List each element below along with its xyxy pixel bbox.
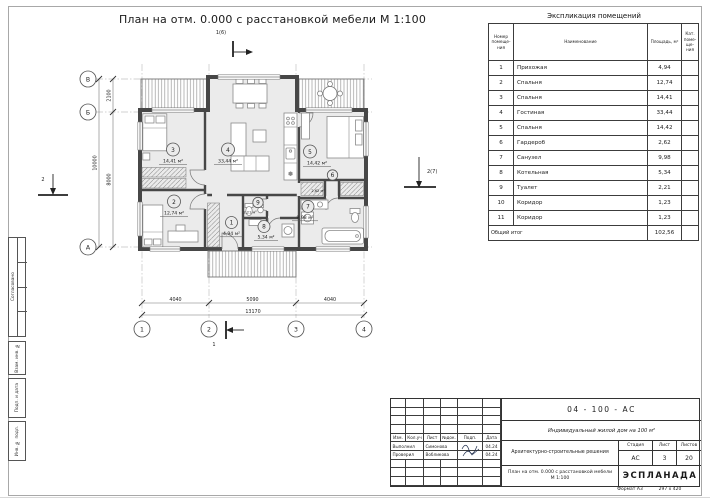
titleblock-cell bbox=[458, 477, 483, 486]
table-cell: 14,41 bbox=[648, 91, 682, 106]
floor-plan-drawing: ❄ 1 4,94 м² bbox=[30, 20, 460, 365]
sheets-total: 20 bbox=[676, 451, 701, 466]
table-cell: 10 bbox=[489, 196, 514, 211]
table-cell bbox=[682, 61, 699, 76]
svg-text:2: 2 bbox=[41, 177, 44, 183]
svg-text:4040: 4040 bbox=[324, 297, 336, 303]
table-cell: 5,34 bbox=[648, 166, 682, 181]
table-cell: 11 bbox=[489, 211, 514, 226]
table-row: 6Гардероб2,62 bbox=[489, 136, 699, 151]
table-row: 10Коридор1,23 bbox=[489, 196, 699, 211]
table-cell: 2,62 bbox=[648, 136, 682, 151]
table-cell: 4,94 bbox=[648, 61, 682, 76]
titleblock-cell bbox=[424, 477, 441, 486]
titleblock-cell bbox=[424, 468, 441, 477]
table-row: 4Гостиная33,44 bbox=[489, 106, 699, 121]
svg-text:6: 6 bbox=[331, 173, 335, 179]
titleblock-cell bbox=[424, 399, 441, 408]
titleblock-cell bbox=[483, 460, 501, 469]
table-cell: Спальня bbox=[514, 121, 648, 136]
dining-table bbox=[233, 79, 267, 108]
col-header-name: Наименование bbox=[514, 24, 648, 61]
svg-text:4: 4 bbox=[362, 326, 366, 333]
terrace-right bbox=[297, 79, 364, 110]
titleblock-cell bbox=[458, 399, 483, 408]
titleblock-cell bbox=[424, 416, 441, 425]
titleblock-cell bbox=[441, 416, 458, 425]
table-cell bbox=[682, 211, 699, 226]
svg-text:7: 7 bbox=[306, 205, 310, 211]
table-cell: 6 bbox=[489, 136, 514, 151]
col-header-area: Площадь, м² bbox=[648, 24, 682, 61]
format-label: Формат А3 bbox=[607, 487, 653, 492]
table-row: 1Прихожая4,94 bbox=[489, 61, 699, 76]
svg-text:14,42 м²: 14,42 м² bbox=[307, 161, 327, 167]
svg-text:5,34 м²: 5,34 м² bbox=[258, 235, 275, 241]
titleblock-cell bbox=[406, 468, 424, 477]
titleblock-cell: №док. bbox=[441, 434, 458, 443]
svg-text:2: 2 bbox=[172, 200, 176, 206]
table-cell: Коридор bbox=[514, 211, 648, 226]
terrace-left bbox=[141, 79, 208, 110]
table-cell: 102,56 bbox=[648, 226, 682, 241]
table-cell: 1,23 bbox=[648, 196, 682, 211]
section-marker-left: 2 bbox=[38, 174, 68, 195]
table-cell bbox=[682, 136, 699, 151]
svg-text:1: 1 bbox=[140, 326, 144, 333]
titleblock-cell bbox=[458, 460, 483, 469]
titleblock-cell bbox=[406, 477, 424, 486]
titleblock-cell bbox=[391, 460, 406, 469]
svg-text:9: 9 bbox=[256, 201, 260, 207]
stage-label: Стадия bbox=[618, 441, 652, 451]
svg-text:13170: 13170 bbox=[245, 309, 260, 315]
table-row: 7Санузел9,98 bbox=[489, 151, 699, 166]
svg-text:3: 3 bbox=[171, 148, 175, 154]
table-cell: 1 bbox=[489, 61, 514, 76]
table-cell bbox=[682, 106, 699, 121]
table-row: 11Коридор1,23 bbox=[489, 211, 699, 226]
titleblock-cell bbox=[458, 425, 483, 434]
table-cell: Коридор bbox=[514, 196, 648, 211]
titleblock-cell: Изм. bbox=[391, 434, 406, 443]
schedule-header-row: Номер помеще- ния Наименование Площадь, … bbox=[489, 24, 699, 61]
table-cell bbox=[682, 76, 699, 91]
titleblock-cell bbox=[406, 416, 424, 425]
section-marker-bottom: 1 bbox=[212, 321, 244, 348]
titleblock-cell bbox=[483, 408, 501, 417]
sheet-label: Лист bbox=[652, 441, 676, 451]
titleblock-grid: Изм.Кол.учЛист№док.Подп.ДатаВыполнилСимо… bbox=[391, 399, 501, 486]
svg-text:2,62 м²: 2,62 м² bbox=[311, 189, 325, 193]
format-size: 297 х 420 bbox=[649, 487, 691, 492]
company-logo: ЭСПЛАНАДА bbox=[618, 466, 701, 486]
svg-text:2: 2 bbox=[207, 326, 211, 333]
table-row: 9Туалет2,21 bbox=[489, 181, 699, 196]
stamp-label: Взам. инв. № bbox=[15, 343, 20, 373]
table-cell: 12,74 bbox=[648, 76, 682, 91]
table-cell: 3 bbox=[489, 91, 514, 106]
table-row: 3Спальня14,41 bbox=[489, 91, 699, 106]
schedule-table: Номер помеще- ния Наименование Площадь, … bbox=[488, 23, 699, 241]
svg-text:5090: 5090 bbox=[246, 297, 258, 303]
table-cell: Туалет bbox=[514, 181, 648, 196]
titleblock-cell bbox=[391, 477, 406, 486]
section-marker-top: 1(6) bbox=[216, 30, 253, 57]
table-cell bbox=[682, 166, 699, 181]
svg-text:2100: 2100 bbox=[107, 89, 113, 101]
title-block: Изм.Кол.учЛист№док.Подп.ДатаВыполнилСимо… bbox=[390, 398, 700, 487]
table-cell: Санузел bbox=[514, 151, 648, 166]
svg-text:8000: 8000 bbox=[107, 173, 113, 185]
table-row: 5Спальня14,42 bbox=[489, 121, 699, 136]
entrance-porch bbox=[208, 251, 296, 277]
table-cell bbox=[682, 151, 699, 166]
svg-text:Б: Б bbox=[86, 109, 90, 116]
svg-text:3: 3 bbox=[294, 326, 298, 333]
titleblock-cell bbox=[483, 477, 501, 486]
svg-text:4: 4 bbox=[226, 148, 230, 154]
table-cell: Общий итог bbox=[489, 226, 648, 241]
schedule-title: Экспликация помещений bbox=[488, 12, 700, 20]
table-cell: Спальня bbox=[514, 91, 648, 106]
titleblock-cell bbox=[483, 468, 501, 477]
stamp-label: Инв. № подл. bbox=[15, 426, 20, 456]
table-cell: 33,44 bbox=[648, 106, 682, 121]
sheets-label: Листов bbox=[676, 441, 701, 451]
titleblock-cell bbox=[441, 425, 458, 434]
table-cell bbox=[682, 196, 699, 211]
titleblock-cell bbox=[458, 416, 483, 425]
table-cell: Спальня bbox=[514, 76, 648, 91]
stamp-box-vzam: Взам. инв. № bbox=[8, 341, 26, 375]
table-cell: 2 bbox=[489, 76, 514, 91]
titleblock-cell: Симонова bbox=[424, 442, 458, 451]
stamp-box-agreed: Согласовано bbox=[8, 237, 26, 337]
svg-text:10000: 10000 bbox=[93, 155, 99, 170]
titleblock-cell: Проверил bbox=[391, 451, 424, 460]
stamp-box-inv: Инв. № подл. bbox=[8, 421, 26, 461]
titleblock-cell bbox=[424, 408, 441, 417]
titleblock-cell bbox=[406, 408, 424, 417]
titleblock-cell bbox=[441, 468, 458, 477]
titleblock-cell: Дата bbox=[483, 434, 501, 443]
svg-text:2,21 м²: 2,21 м² bbox=[243, 211, 257, 215]
signatures bbox=[459, 442, 484, 460]
table-cell: 1,23 bbox=[648, 211, 682, 226]
titleblock-cell: 04.24 bbox=[483, 451, 501, 460]
table-cell bbox=[682, 121, 699, 136]
titleblock-cell bbox=[406, 399, 424, 408]
svg-text:1(6): 1(6) bbox=[216, 30, 226, 36]
titleblock-cell bbox=[424, 425, 441, 434]
titleblock-cell: Лист bbox=[424, 434, 441, 443]
titleblock-cell: Кол.уч bbox=[406, 434, 424, 443]
stamp-label: Подп. и дата bbox=[15, 383, 20, 412]
table-cell: Гостиная bbox=[514, 106, 648, 121]
svg-text:4,94 м²: 4,94 м² bbox=[223, 231, 240, 237]
svg-text:5: 5 bbox=[308, 150, 312, 156]
table-cell: 4 bbox=[489, 106, 514, 121]
kitchen-counter: ❄ bbox=[284, 113, 297, 180]
titleblock-cell bbox=[441, 408, 458, 417]
titleblock-cell bbox=[391, 416, 406, 425]
table-cell bbox=[682, 226, 699, 241]
titleblock-cell bbox=[406, 460, 424, 469]
fridge-icon: ❄ bbox=[288, 172, 292, 178]
svg-text:1: 1 bbox=[212, 342, 215, 348]
titleblock-cell bbox=[424, 460, 441, 469]
table-row: 2Спальня12,74 bbox=[489, 76, 699, 91]
titleblock-cell: Выполнил bbox=[391, 442, 424, 451]
titleblock-cell bbox=[458, 408, 483, 417]
table-cell: 5 bbox=[489, 121, 514, 136]
svg-text:33,44 м²: 33,44 м² bbox=[218, 159, 238, 165]
titleblock-cell bbox=[391, 408, 406, 417]
svg-text:12,74 м²: 12,74 м² bbox=[164, 211, 184, 217]
table-cell bbox=[682, 181, 699, 196]
titleblock-cell bbox=[441, 477, 458, 486]
table-cell: Прихожая bbox=[514, 61, 648, 76]
table-cell: 9,98 bbox=[648, 151, 682, 166]
section-name: Архитектурно-строительные решения bbox=[501, 441, 618, 466]
titleblock-cell bbox=[483, 399, 501, 408]
terrace-table bbox=[323, 87, 337, 101]
titleblock-cell bbox=[483, 425, 501, 434]
svg-text:В: В bbox=[86, 76, 90, 83]
table-row: 8Котельная5,34 bbox=[489, 166, 699, 181]
document-number: 04 - 100 - АС bbox=[501, 399, 701, 421]
svg-text:2(7): 2(7) bbox=[427, 169, 437, 175]
titleblock-cell bbox=[406, 425, 424, 434]
stamp-column: Согласовано Взам. инв. № Подп. и дата Ин… bbox=[8, 237, 28, 494]
titleblock-cell bbox=[391, 399, 406, 408]
svg-text:8: 8 bbox=[262, 225, 266, 231]
titleblock-cell bbox=[441, 460, 458, 469]
titleblock-cell bbox=[458, 468, 483, 477]
svg-text:9,98 м²: 9,98 м² bbox=[297, 215, 314, 221]
table-cell bbox=[682, 91, 699, 106]
table-cell: 2,21 bbox=[648, 181, 682, 196]
svg-text:14,41 м²: 14,41 м² bbox=[163, 159, 183, 165]
table-total-row: Общий итог102,56 bbox=[489, 226, 699, 241]
titleblock-cell bbox=[391, 468, 406, 477]
page-edge-line bbox=[0, 497, 710, 498]
table-cell: Котельная bbox=[514, 166, 648, 181]
titleblock-cell bbox=[441, 399, 458, 408]
titleblock-cell: Вобликова bbox=[424, 451, 458, 460]
section-marker-right: 2(7) bbox=[404, 157, 437, 188]
sheet-number: 3 bbox=[652, 451, 676, 466]
sheet-title-cell: План на отм. 0.000 с расстановкой мебели… bbox=[501, 466, 618, 486]
stage-value: АС bbox=[618, 451, 652, 466]
svg-text:1: 1 bbox=[230, 221, 234, 227]
col-header-number: Номер помеще- ния bbox=[489, 24, 514, 61]
room-schedule: Экспликация помещений Номер помеще- ния … bbox=[488, 12, 700, 241]
table-cell: 8 bbox=[489, 166, 514, 181]
table-cell: 9 bbox=[489, 181, 514, 196]
col-header-category: Кат. поме- ще- ния bbox=[682, 24, 699, 61]
titleblock-cell bbox=[391, 425, 406, 434]
titleblock-cell bbox=[483, 416, 501, 425]
table-cell: Гардероб bbox=[514, 136, 648, 151]
titleblock-cell: 04.24 bbox=[483, 442, 501, 451]
table-cell: 7 bbox=[489, 151, 514, 166]
project-name: Индивидуальный жилой дом на 100 м² bbox=[501, 421, 701, 441]
svg-text:4040: 4040 bbox=[169, 297, 181, 303]
stamp-box-podp: Подп. и дата bbox=[8, 378, 26, 418]
table-cell: 14,42 bbox=[648, 121, 682, 136]
